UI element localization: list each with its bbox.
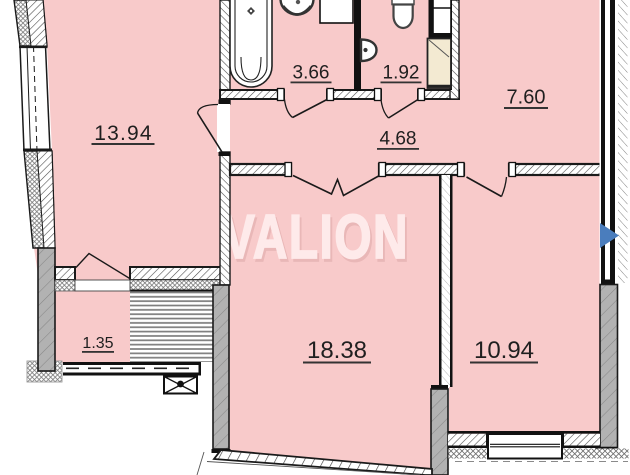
svg-text:10.94: 10.94: [474, 337, 534, 364]
svg-text:18.38: 18.38: [307, 337, 367, 364]
svg-text:VALION: VALION: [223, 202, 409, 271]
svg-text:3.66: 3.66: [293, 63, 330, 84]
svg-text:7.60: 7.60: [507, 87, 546, 109]
svg-text:1.92: 1.92: [383, 63, 420, 84]
svg-text:1.35: 1.35: [82, 335, 113, 352]
svg-text:4.68: 4.68: [380, 129, 417, 150]
svg-text:13.94: 13.94: [94, 122, 153, 145]
